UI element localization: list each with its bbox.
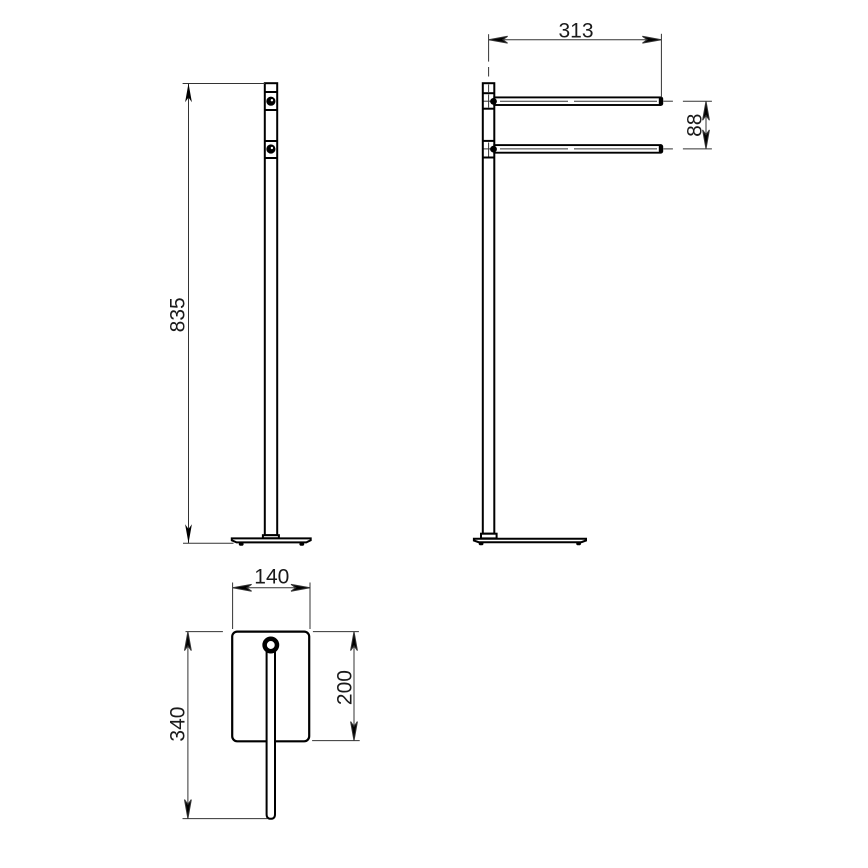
svg-text:140: 140 (254, 565, 289, 588)
svg-text:200: 200 (334, 670, 357, 705)
svg-text:88: 88 (684, 114, 707, 137)
svg-text:313: 313 (558, 19, 593, 42)
svg-text:340: 340 (167, 707, 190, 742)
svg-text:835: 835 (167, 297, 190, 332)
